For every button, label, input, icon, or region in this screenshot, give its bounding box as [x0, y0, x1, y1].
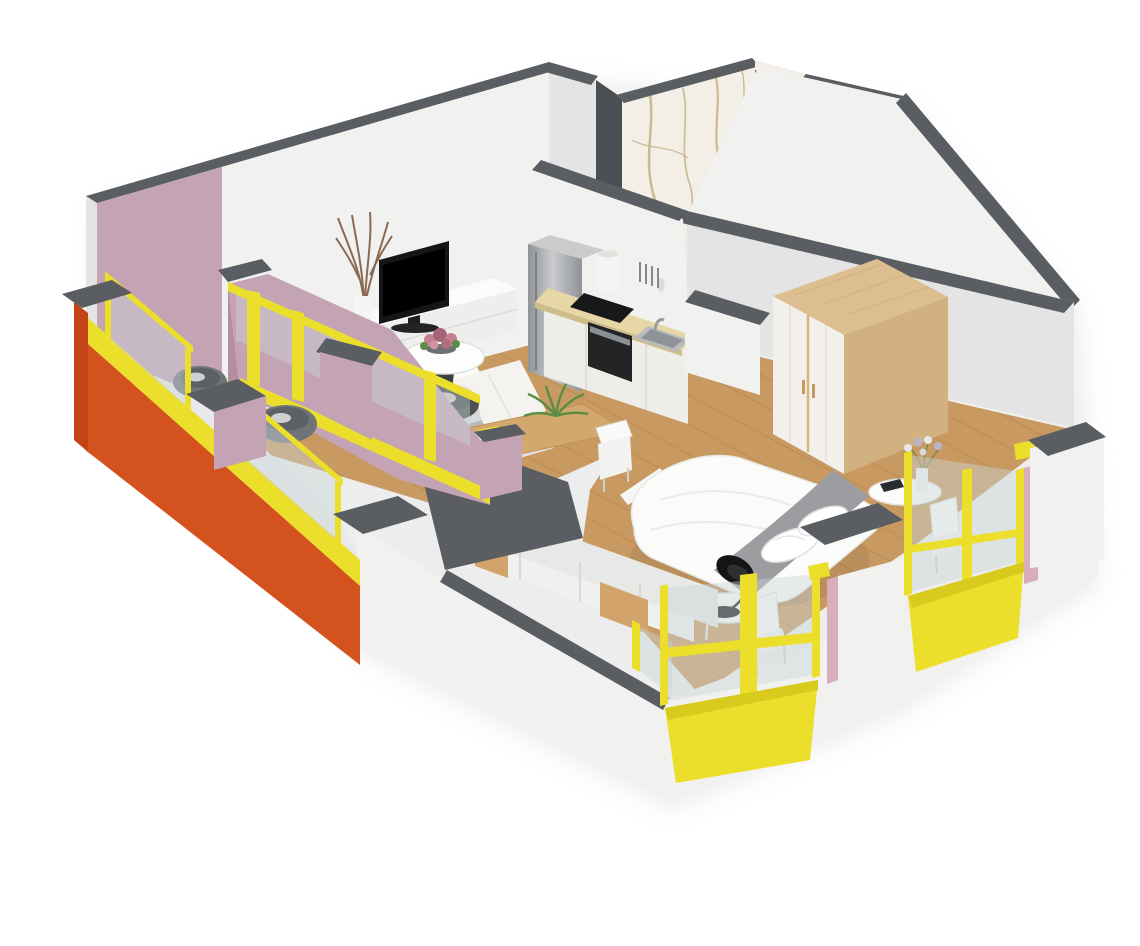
floorplan-canvas: Isometric cutaway 3D rendering of a one-… [0, 0, 1140, 946]
inner-pier-small [474, 424, 526, 500]
canister [598, 251, 618, 293]
window-1 [660, 562, 830, 783]
window-2 [904, 440, 1038, 672]
apartment-3d-render: Isometric cutaway 3D rendering of a one-… [0, 0, 1140, 946]
corner-post [1028, 422, 1106, 568]
